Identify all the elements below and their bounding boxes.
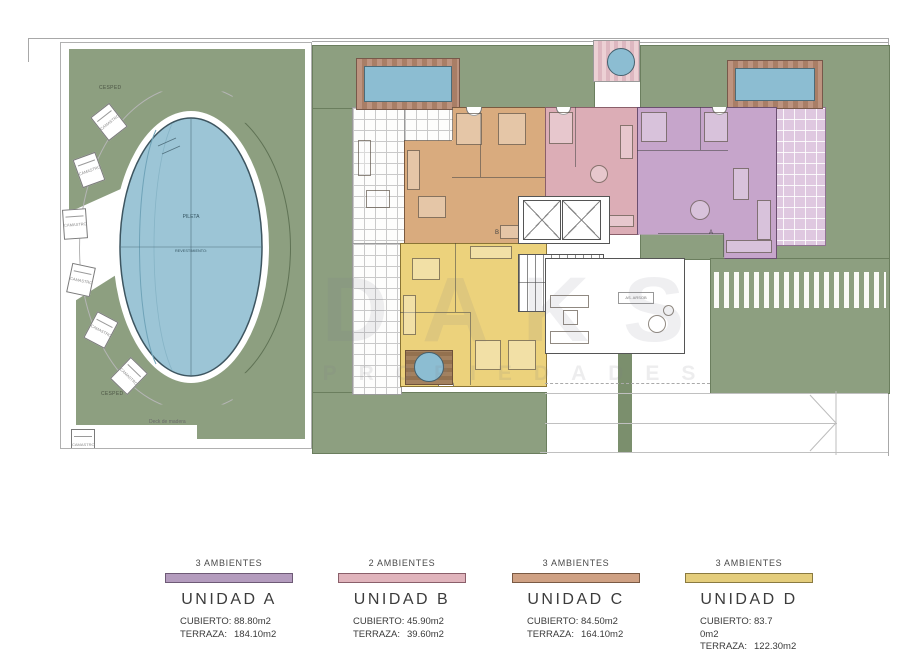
lounge-chair: CAMASTRO xyxy=(71,429,95,449)
terrace-pool-c-water xyxy=(364,66,452,102)
legend-unit-name: UNIDAD C xyxy=(512,591,640,609)
furniture-bed xyxy=(456,113,482,145)
lobby-tag: AS. ARSOB xyxy=(618,292,654,304)
legend-row: CUBIERTO:45.90m2 xyxy=(353,616,466,629)
legend-unit-name: UNIDAD D xyxy=(685,591,813,609)
furniture-table xyxy=(412,258,440,280)
legend-row-label: CUBIERTO: xyxy=(527,616,581,629)
garden-area: CESPED CESPED PILETA REVESTIMIENTO: CAMA… xyxy=(60,42,312,449)
legend-ambientes: 3 AMBIENTES xyxy=(685,558,813,568)
section-marker-a: A xyxy=(706,230,716,236)
plan-frame-top xyxy=(28,38,888,39)
legend-row: CUBIERTO:88.80m2 xyxy=(180,616,293,629)
furniture-bed xyxy=(475,340,501,370)
roof-deck-tub xyxy=(607,48,635,76)
furniture-bed xyxy=(641,112,667,142)
legend-row-label: TERRAZA: xyxy=(527,629,581,642)
furniture-bed xyxy=(508,340,536,370)
oval-pool: PILETA REVESTIMIENTO: xyxy=(118,116,264,378)
chair-label: CAMASTRO xyxy=(72,442,94,447)
legend-row-value: 184.10m2 xyxy=(234,629,276,640)
legend-row: 0m2 xyxy=(700,629,813,642)
elevator-shaft xyxy=(523,200,561,240)
legend-color-bar-c xyxy=(512,573,640,583)
legend-row: CUBIERTO:84.50m2 xyxy=(527,616,640,629)
deck-label: Deck de madera xyxy=(149,419,186,425)
section-marker-a-label: A xyxy=(709,230,713,236)
entry-roof-chevron xyxy=(808,391,840,455)
driveway-line xyxy=(545,423,837,424)
legend-ambientes: 3 AMBIENTES xyxy=(512,558,640,568)
legend-row-label: CUBIERTO: xyxy=(353,616,407,629)
furniture-round-table xyxy=(590,165,608,183)
furniture-counter xyxy=(726,240,772,253)
furniture-sofa xyxy=(403,295,416,335)
legend-color-bar-b xyxy=(338,573,466,583)
furniture-bed xyxy=(498,113,526,145)
wall xyxy=(455,243,456,312)
driveway-dashed-line xyxy=(545,383,710,384)
dimension-line-top-right xyxy=(640,42,888,43)
furniture-table xyxy=(418,196,446,218)
legend-ambientes: 2 AMBIENTES xyxy=(338,558,466,568)
elevator-shaft xyxy=(562,200,601,240)
furniture-sofa xyxy=(407,150,420,190)
legend-row-label: 0m2 xyxy=(700,629,754,642)
dimension-line-top-left xyxy=(312,41,593,42)
legend-row-label: CUBIERTO: xyxy=(700,616,754,629)
section-marker-b-label: B xyxy=(495,230,499,236)
terrace-grid-c xyxy=(352,107,406,245)
chair-label: CAMASTRO xyxy=(78,164,100,176)
terrace-pool-a xyxy=(727,60,823,109)
furniture-sofa xyxy=(620,125,633,159)
wall xyxy=(723,233,724,257)
pergola-slats xyxy=(714,272,886,308)
terrace-grid-c-notch xyxy=(404,107,454,142)
legend-item-c: 3 AMBIENTES UNIDAD C CUBIERTO:84.50m2 TE… xyxy=(512,558,640,641)
legend-color-bar-a xyxy=(165,573,293,583)
chair-label: CAMASTRO xyxy=(70,276,93,285)
legend-row-value: 83.7 xyxy=(754,616,773,627)
lawn-bottom-strip xyxy=(312,392,547,454)
legend-row: TERRAZA:184.10m2 xyxy=(180,629,293,642)
grass-label: CESPED xyxy=(99,85,121,91)
chair-line xyxy=(74,436,92,437)
furniture-sofa xyxy=(757,200,771,240)
legend-unit-details: CUBIERTO:83.7 0m2 TERRAZA:122.30m2 xyxy=(685,616,813,654)
pool-label: PILETA xyxy=(183,214,201,220)
legend-color-bar-d xyxy=(685,573,813,583)
legend-row: TERRAZA:164.10m2 xyxy=(527,629,640,642)
chair-label: CAMASTRO xyxy=(64,221,86,228)
legend-item-a: 3 AMBIENTES UNIDAD A CUBIERTO:88.80m2 TE… xyxy=(165,558,293,641)
legend-unit-details: CUBIERTO:84.50m2 TERRAZA:164.10m2 xyxy=(512,616,640,641)
legend-unit-name: UNIDAD B xyxy=(338,591,466,609)
terrace-grid-c-strip xyxy=(352,243,402,395)
furniture-counter xyxy=(470,246,512,259)
plan-frame-left-tick xyxy=(28,38,29,62)
chair-label: CAMASTRO xyxy=(119,367,138,386)
pool-sublabel: REVESTIMIENTO: xyxy=(175,249,207,253)
legend-row-label: TERRAZA: xyxy=(353,629,407,642)
legend-row-value: 164.10m2 xyxy=(581,629,623,640)
wall xyxy=(575,107,576,167)
legend-row-label: TERRAZA: xyxy=(700,641,754,654)
legend-row-value: 122.30m2 xyxy=(754,641,796,652)
legend-ambientes: 3 AMBIENTES xyxy=(165,558,293,568)
wall xyxy=(700,107,701,150)
lobby-sofa xyxy=(550,295,589,308)
lounge-chair: CAMASTRO xyxy=(62,208,88,240)
lobby-plant xyxy=(648,315,666,333)
furniture-sofa xyxy=(358,140,371,176)
wall xyxy=(452,107,453,140)
lobby-sofa xyxy=(550,331,589,344)
legend-row-value: 88.80m2 xyxy=(234,616,271,627)
wall xyxy=(452,177,545,178)
legend-row-label: CUBIERTO: xyxy=(180,616,234,629)
legend-unit-details: CUBIERTO:45.90m2 TERRAZA:39.60m2 xyxy=(338,616,466,641)
legend-item-b: 2 AMBIENTES UNIDAD B CUBIERTO:45.90m2 TE… xyxy=(338,558,466,641)
furniture-island xyxy=(733,168,749,200)
site-plan-page: CESPED CESPED PILETA REVESTIMIENTO: CAMA… xyxy=(0,0,903,670)
hedge-strip xyxy=(618,352,632,453)
legend-row-value: 39.60m2 xyxy=(407,629,444,640)
furniture-bed xyxy=(704,112,728,142)
wall xyxy=(637,150,728,151)
wall xyxy=(404,140,452,141)
legend-row: TERRAZA:122.30m2 xyxy=(700,641,813,654)
legend-unit-name: UNIDAD A xyxy=(165,591,293,609)
legend-item-d: 3 AMBIENTES UNIDAD D CUBIERTO:83.7 0m2 T… xyxy=(685,558,813,654)
terrace-pool-c xyxy=(356,58,460,110)
section-marker-b: B xyxy=(492,230,502,236)
legend-row-value: 84.50m2 xyxy=(581,616,618,627)
legend-row-label: TERRAZA: xyxy=(180,629,234,642)
legend-row: CUBIERTO:83.7 xyxy=(700,616,813,629)
legend-unit-details: CUBIERTO:88.80m2 TERRAZA:184.10m2 xyxy=(165,616,293,641)
terrace-pool-a-water xyxy=(735,68,815,101)
grass-label: CESPED xyxy=(101,391,123,397)
lobby-table xyxy=(563,310,578,325)
legend-row: TERRAZA:39.60m2 xyxy=(353,629,466,642)
wall xyxy=(470,312,471,385)
furniture-bed xyxy=(549,112,573,144)
furniture-table xyxy=(366,190,390,208)
hot-tub xyxy=(414,352,444,382)
chair-line xyxy=(74,270,92,275)
chair-line xyxy=(65,215,83,217)
furniture-round-table xyxy=(690,200,710,220)
lobby-plant xyxy=(663,305,674,316)
legend-row-value: 45.90m2 xyxy=(407,616,444,627)
